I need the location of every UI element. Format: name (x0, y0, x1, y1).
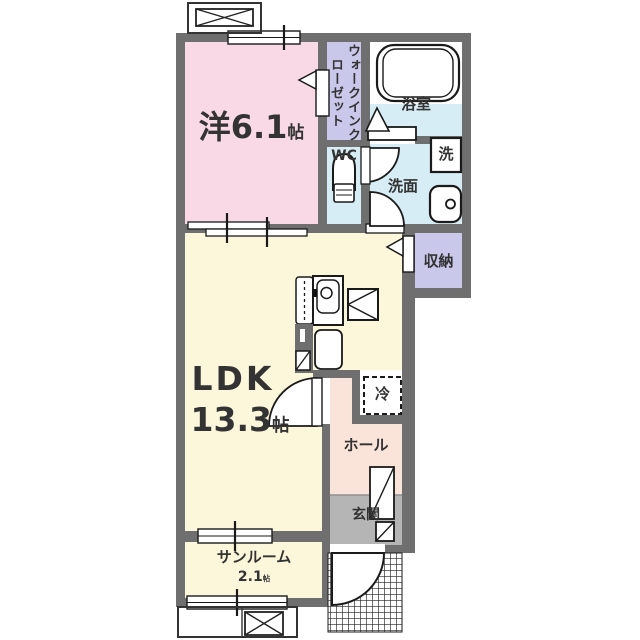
western-room-area: 6.1 (231, 108, 288, 146)
porch-hatch (328, 553, 402, 632)
label-wc: WC (327, 149, 361, 164)
kitchen-icon (295, 276, 343, 373)
label-ldk: LDK (174, 361, 292, 397)
ldk-unit: 帖 (272, 416, 290, 436)
floor-plan-drawing (0, 0, 640, 640)
label-hall: ホール (330, 437, 402, 454)
label-washing-machine: 洗 (431, 146, 461, 163)
label-washroom: 洗面 (374, 178, 432, 195)
floor-plan: 洋6.1帖 ウォークインクローゼット 浴室 WC 洗 洗面 収納 LDK 13.… (0, 0, 640, 640)
label-sunroom-area: 2.1帖 (186, 570, 322, 585)
ac-unit-bottom-icon (245, 612, 283, 635)
sunroom-area: 2.1 (238, 569, 263, 585)
label-sunroom: サンルーム (186, 549, 322, 566)
label-western-room: 洋6.1帖 (183, 110, 320, 145)
label-storage: 収納 (415, 253, 462, 270)
label-bathroom: 浴室 (370, 96, 462, 113)
ac-unit-top-icon (196, 9, 253, 26)
sink-icon (430, 186, 461, 222)
label-walk-in-closet: ウォークインクローゼット (326, 44, 362, 142)
range-hood-icon (348, 289, 378, 320)
western-room-unit: 帖 (287, 122, 304, 142)
balcony-outline-top (188, 3, 261, 33)
label-entrance: 玄関 (330, 508, 402, 523)
label-refrigerator: 冷 (364, 386, 401, 403)
bathtub-icon (377, 45, 459, 101)
walk-in-closet-name: ウォークインクローゼット (327, 44, 361, 142)
ldk-area: 13.3 (191, 400, 272, 439)
sunroom-unit: 帖 (263, 574, 270, 583)
western-room-name: 洋 (199, 108, 231, 146)
label-ldk-area: 13.3帖 (172, 402, 308, 438)
